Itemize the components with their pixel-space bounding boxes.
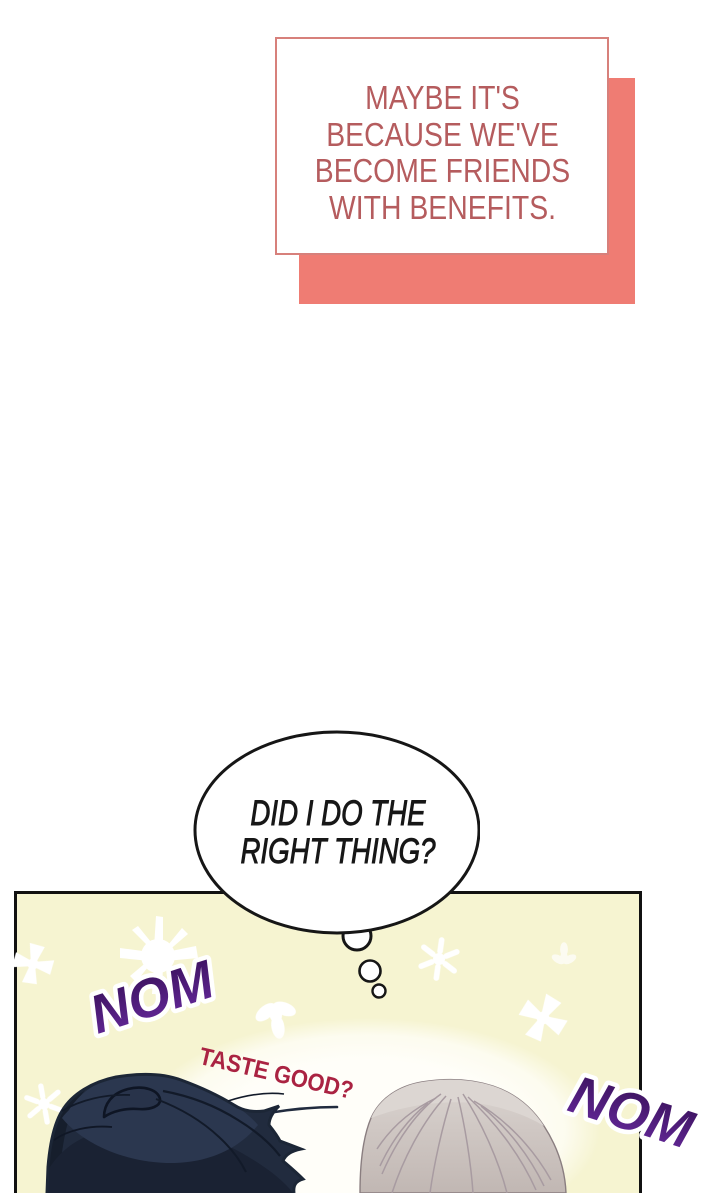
svg-text:TASTE GOOD?: TASTE GOOD?: [197, 1043, 356, 1105]
svg-text:NOM: NOM: [562, 1064, 701, 1160]
